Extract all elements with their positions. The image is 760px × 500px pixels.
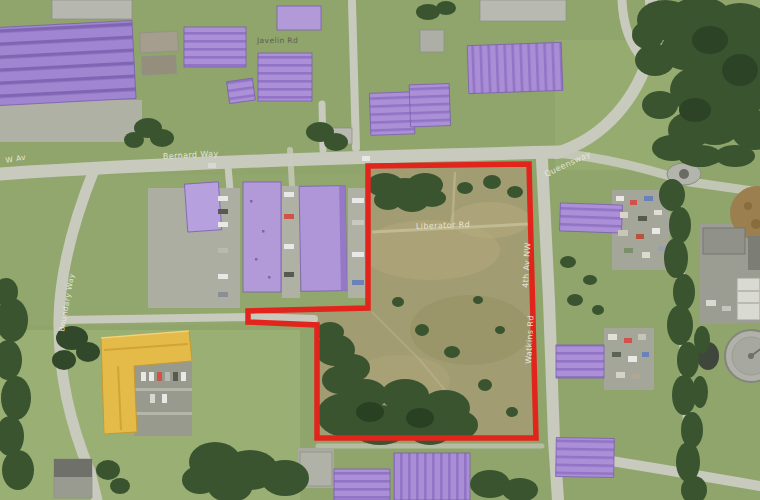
building-purple-9 (243, 182, 281, 292)
building-purple-15 (334, 469, 390, 500)
building-purple-13 (556, 437, 615, 477)
building-purple-7 (467, 42, 563, 93)
building-purple-11 (560, 203, 623, 233)
building-purple-8 (184, 182, 221, 232)
building-grey-topleft (52, 0, 132, 19)
building-purple-4 (277, 6, 321, 30)
building-purple-6 (409, 84, 450, 127)
building-purple-5 (369, 92, 414, 136)
building-purple-1 (184, 27, 246, 67)
road-label-centre: Liberator Rd (416, 220, 470, 231)
building-purple-3 (258, 53, 312, 101)
road-connector-b (290, 150, 292, 186)
aerial-map: W Av Bernard Way Queensway Javelin Rd Li… (0, 0, 760, 500)
building-purple-12 (556, 345, 604, 378)
building-grey-topright (480, 0, 566, 21)
road-connector-a (228, 166, 230, 190)
road-label-estate: Javelin Rd (256, 36, 298, 45)
building-brown-b (142, 55, 177, 75)
building-purple-complex (0, 20, 136, 105)
building-purple-2 (227, 78, 256, 103)
building-brown-a (140, 31, 179, 53)
road-top-centre-vertical (352, 2, 356, 148)
road-mid-access (60, 317, 314, 320)
building-purple-14 (394, 453, 470, 500)
satellite-image: W Av Bernard Way Queensway Javelin Rd Li… (0, 0, 760, 500)
